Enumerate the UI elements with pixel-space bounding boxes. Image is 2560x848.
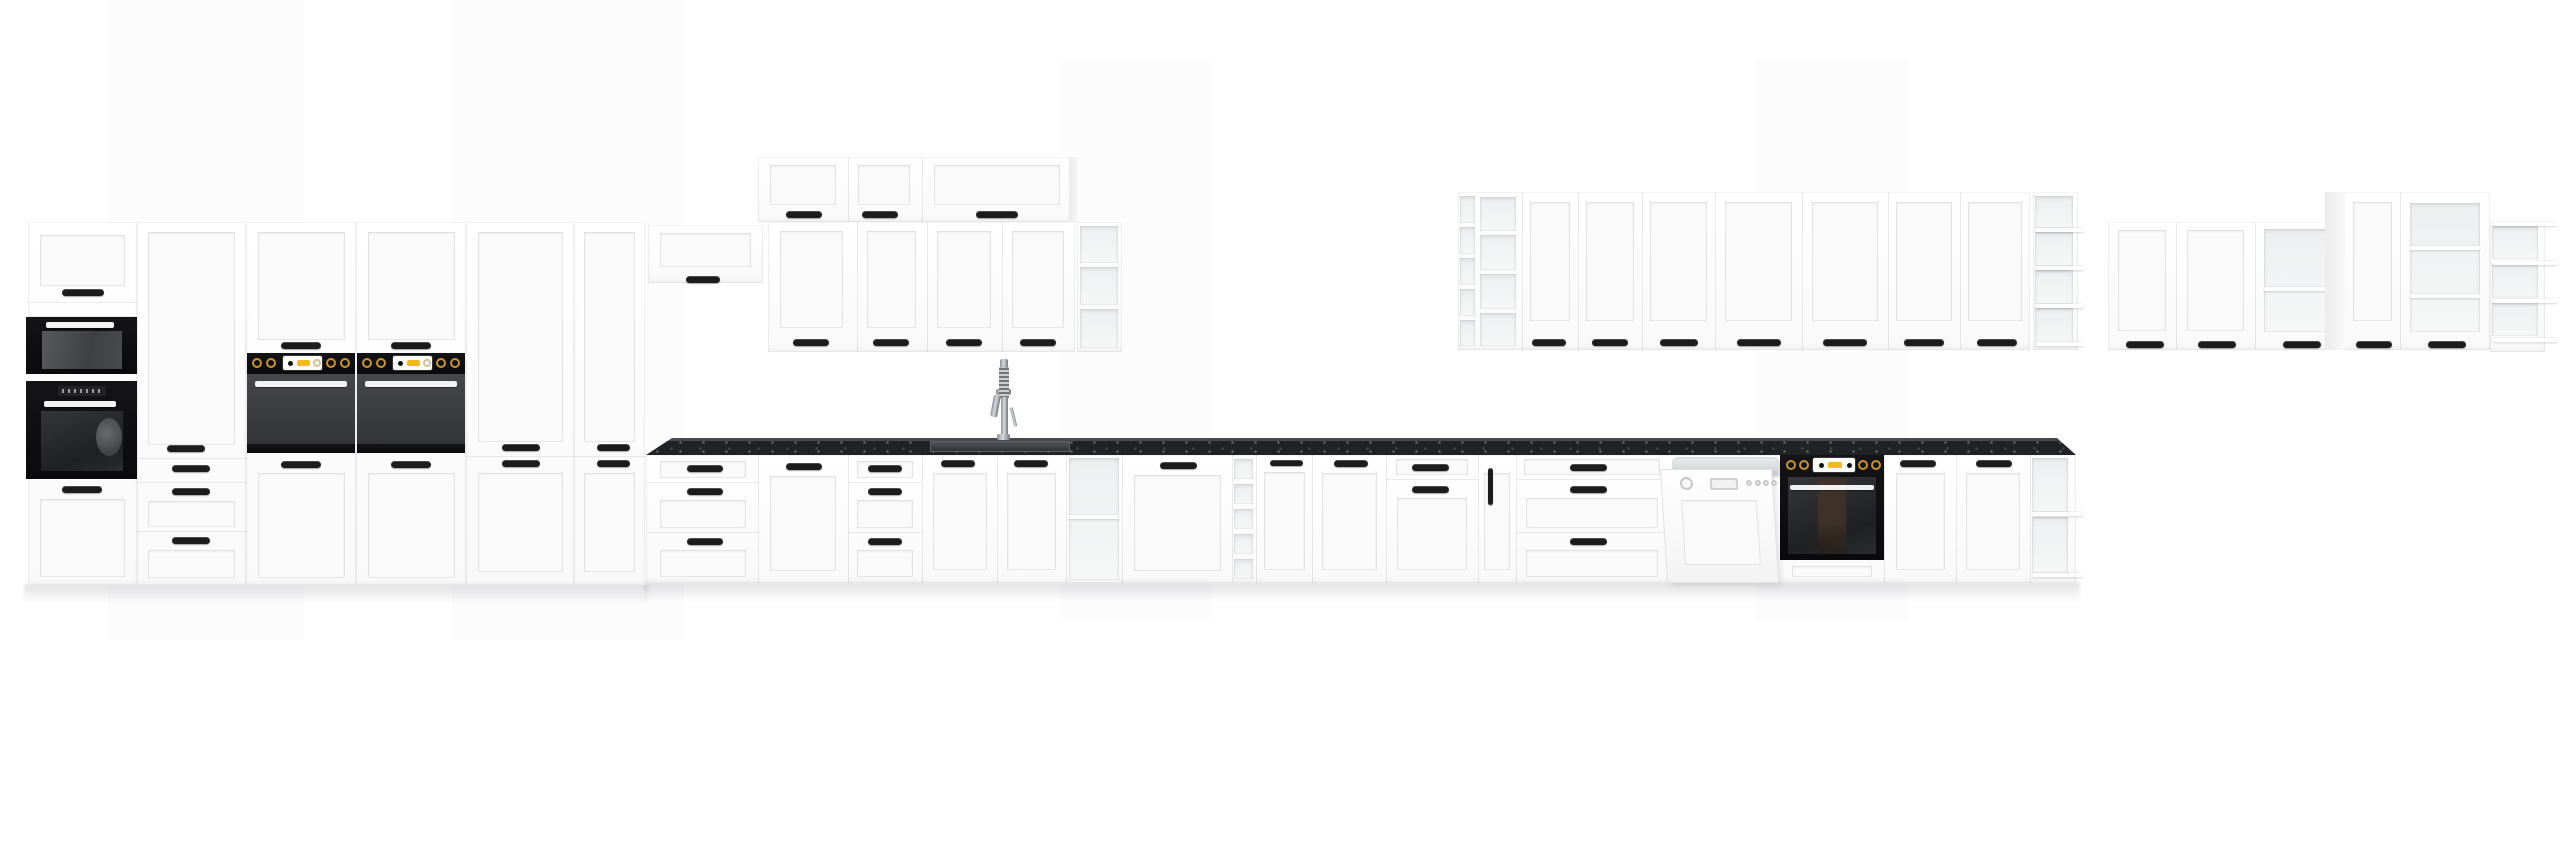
door-panel (40, 235, 125, 286)
control-knob (450, 358, 460, 368)
panel-seam (137, 531, 246, 532)
door-panel (660, 500, 746, 528)
door-handle (1976, 460, 2012, 467)
door-panel (1792, 566, 1872, 577)
door-panel (770, 476, 836, 571)
door-gap (2255, 222, 2256, 350)
countertop (646, 438, 2076, 455)
door-gap (922, 157, 923, 222)
door-gap (848, 455, 849, 583)
door-gap (1232, 455, 1233, 583)
door-gap (1802, 192, 1803, 350)
door-gap (1002, 222, 1003, 352)
shelf-compartment (1460, 227, 1475, 254)
door-panel (1134, 475, 1221, 571)
shelf-edge (2036, 266, 2084, 270)
door-handle (1532, 339, 1566, 346)
base-open-shelf (1069, 458, 1119, 580)
microwave-window (42, 331, 122, 369)
door-panel (780, 231, 843, 328)
faucet-head (990, 395, 1001, 418)
door-panel (2353, 202, 2392, 321)
kitchen-product-image: White shaker-style kitchen cabinet set w… (0, 0, 2560, 848)
appliance-panel (357, 444, 465, 453)
door-handle (391, 342, 431, 349)
door-handle (1904, 339, 1944, 346)
door-panel (1681, 500, 1761, 565)
door-handle (1737, 339, 1781, 346)
control-knob (252, 358, 262, 368)
appliance-handle (44, 401, 116, 407)
door-handle (786, 211, 822, 218)
shelf-compartment (1234, 534, 1253, 554)
shelf-edge (2493, 299, 2557, 303)
panel-seam (848, 532, 922, 533)
door-handle (1592, 339, 1628, 346)
door-handle (172, 488, 210, 495)
door-handle (941, 460, 975, 467)
door-handle (502, 460, 540, 467)
door-handle (502, 444, 540, 451)
door-panel (1264, 472, 1305, 570)
door-handle (793, 339, 829, 346)
door-gap (1256, 455, 1257, 583)
shelf-edge (2033, 573, 2083, 577)
door-panel (934, 165, 1060, 205)
door-handle (868, 465, 902, 472)
door-handle (1160, 462, 1197, 469)
shelf-edge (2493, 222, 2557, 226)
door-handle (2356, 341, 2392, 348)
shelf-compartment (2035, 196, 2073, 228)
faucet-cap (1000, 359, 1008, 368)
door-gap (1884, 455, 1885, 583)
control-knob (436, 358, 446, 368)
door-handle (976, 211, 1018, 218)
door-handle (62, 289, 104, 296)
door-panel (867, 231, 916, 328)
shelf-compartment (1460, 289, 1475, 316)
door-panel (1725, 202, 1792, 321)
door-handle (786, 463, 822, 470)
door-panel (1586, 202, 1634, 321)
shelf-compartment (1234, 559, 1253, 579)
door-gap (1066, 455, 1067, 583)
shelf-edge (2410, 246, 2480, 250)
shelf-edge (2493, 261, 2557, 265)
door-panel (770, 165, 836, 205)
shelf-compartment (1234, 484, 1253, 504)
door-handle (1570, 464, 1607, 471)
door-gap (997, 455, 998, 583)
door-gap (1516, 455, 1517, 583)
shelf-compartment (2035, 308, 2073, 346)
door-handle (167, 445, 205, 452)
door-gap (1642, 192, 1643, 350)
door-gap (2176, 222, 2177, 350)
panel-seam (574, 456, 645, 457)
panel-seam (1516, 532, 1667, 533)
door-handle (687, 538, 723, 545)
glass-cabinet-opening (2264, 229, 2334, 332)
door-handle (868, 488, 902, 495)
door-handle (1334, 460, 1368, 467)
door-panel (148, 501, 235, 527)
control-knob (266, 358, 276, 368)
door-handle (1270, 460, 1303, 466)
door-gap (857, 222, 858, 352)
panel-seam (648, 532, 758, 533)
shelf-compartment (2032, 458, 2068, 512)
door-handle (1570, 486, 1607, 493)
control-knob (1786, 460, 1796, 470)
door-panel (1966, 473, 2020, 570)
door-panel (40, 499, 125, 577)
dishwasher-control (1771, 480, 1777, 486)
shelf-compartment (1460, 196, 1475, 223)
door-panel (1012, 231, 1064, 328)
panel-seam (137, 458, 246, 459)
shelf-compartment (2032, 517, 2068, 573)
door-handle (62, 486, 102, 493)
door-handle (1020, 339, 1056, 346)
door-gap (1386, 455, 1387, 583)
shelf-edge (2033, 512, 2083, 516)
shelf-edge (2264, 287, 2334, 291)
door-handle (868, 538, 902, 545)
door-panel (584, 232, 635, 442)
dishwasher-door (1661, 470, 1778, 582)
door-panel (368, 473, 455, 578)
door-handle (1412, 486, 1449, 493)
door-panel (368, 232, 455, 340)
door-gap (848, 157, 849, 222)
control-knob (1799, 460, 1809, 470)
door-handle (391, 461, 431, 468)
shelf-edge (1069, 515, 1119, 519)
door-handle (2198, 341, 2236, 348)
oven-fan-reflection (96, 418, 122, 456)
dishwasher-control (1746, 480, 1752, 486)
shelf-compartment (1080, 267, 1118, 305)
door-panel (1968, 202, 2022, 321)
panel-seam (137, 482, 246, 483)
panel-seam (1386, 479, 1478, 480)
door-gap (1888, 192, 1889, 350)
display-ring (423, 359, 431, 367)
door-gap (1122, 455, 1123, 583)
door-panel (2118, 230, 2166, 331)
door-handle (687, 488, 723, 495)
side-panel (2325, 192, 2345, 350)
shelf-compartment (1234, 459, 1253, 479)
door-gap (1312, 455, 1313, 583)
panel-seam (848, 482, 922, 483)
shelf-compartment (2492, 302, 2538, 336)
display-indicator (407, 360, 420, 366)
shelf-compartment (1480, 313, 1516, 346)
faucet-body (1001, 397, 1008, 439)
glass-cabinet-opening-tall (2410, 203, 2480, 332)
door-panel (858, 165, 910, 205)
door-panel (2187, 230, 2244, 331)
shelf-compartment (1480, 197, 1516, 231)
door-handle (597, 444, 630, 451)
door-handle (2283, 341, 2321, 348)
sink (930, 441, 1070, 452)
appliance-panel (247, 444, 355, 453)
shelf-compartment (2035, 232, 2073, 266)
door-handle (873, 339, 909, 346)
shelf-edge (2036, 304, 2084, 308)
vertical-handle (1488, 468, 1493, 505)
shelf-compartment (2492, 226, 2538, 259)
door-handle (2126, 341, 2164, 348)
door-handle (946, 339, 982, 346)
door-panel (1526, 498, 1658, 528)
door-panel (660, 233, 751, 267)
door-handle (686, 276, 720, 283)
display-dot (1819, 463, 1824, 468)
oven-display (58, 386, 106, 396)
door-gap (2400, 192, 2401, 350)
door-panel (478, 473, 563, 572)
door-panel (1812, 202, 1878, 321)
faucet-lever (1010, 407, 1018, 427)
door-handle (172, 465, 210, 472)
display-indicator (1828, 462, 1842, 468)
door-panel (1007, 473, 1056, 570)
appliance-handle (365, 381, 457, 387)
door-panel (1322, 473, 1377, 570)
control-knob (362, 358, 372, 368)
shelf-edge (2036, 228, 2084, 232)
appliance-handle (1790, 485, 1874, 490)
door-handle (1900, 460, 1936, 467)
door-gap (1522, 192, 1523, 350)
appliance-handle (255, 381, 347, 387)
door-panel (148, 550, 235, 578)
faucet-coil (999, 366, 1009, 399)
door-panel (1650, 202, 1707, 321)
door-panel (258, 473, 345, 578)
dishwasher-control (1755, 480, 1761, 486)
door-handle (1014, 460, 1048, 467)
door-handle (281, 461, 321, 468)
door-handle (1660, 339, 1698, 346)
floor-shadow-main (644, 582, 2080, 602)
shelf-compartment (1080, 226, 1118, 263)
control-knob (326, 358, 336, 368)
control-knob (1871, 460, 1881, 470)
faucet-base (997, 434, 1010, 440)
appliance-handle (46, 322, 114, 328)
door-gap (922, 455, 923, 583)
door-panel (1526, 550, 1658, 577)
door-gap (927, 222, 928, 352)
door-panel (937, 231, 991, 328)
door-panel (660, 550, 746, 577)
display-indicator (297, 360, 310, 366)
door-handle (281, 342, 321, 349)
door-handle (862, 211, 898, 218)
door-gap (2030, 455, 2031, 583)
door-gap (1715, 192, 1716, 350)
door-handle (597, 460, 630, 467)
control-knob (1858, 460, 1868, 470)
door-handle (1977, 339, 2017, 346)
shelf-compartment (1234, 509, 1253, 529)
door-panel (148, 232, 235, 445)
door-handle (2428, 341, 2466, 348)
door-handle (1412, 464, 1449, 471)
display-dot (398, 361, 403, 366)
display-dot (288, 361, 293, 366)
door-panel (1896, 473, 1945, 570)
shelf-compartment (1460, 258, 1475, 285)
panel-seam (648, 482, 758, 483)
shelf-compartment (1460, 320, 1475, 346)
control-knob (340, 358, 350, 368)
side-panel (1070, 157, 1078, 222)
control-knob (376, 358, 386, 368)
door-handle (1823, 339, 1867, 346)
panel-seam (466, 456, 574, 457)
shelf-compartment (1080, 309, 1118, 348)
door-gap (1578, 192, 1579, 350)
floor-shadow-left (24, 584, 648, 604)
dishwasher-control (1680, 477, 1694, 490)
display-dot (1847, 463, 1852, 468)
shelf-compartment (2035, 270, 2073, 304)
dishwasher-display (1710, 478, 1739, 490)
panel-seam (1516, 479, 1667, 480)
door-panel (258, 232, 345, 340)
door-handle (1570, 538, 1607, 545)
door-gap (1956, 455, 1957, 583)
shelf-compartment (1480, 235, 1516, 270)
door-panel (1530, 202, 1570, 321)
door-gap (758, 455, 759, 583)
door-panel (584, 473, 635, 572)
door-panel (857, 550, 913, 577)
door-handle (172, 537, 210, 544)
door-panel (1397, 498, 1467, 570)
shelf-compartment (2492, 264, 2538, 298)
display-ring (313, 359, 321, 367)
door-gap (1478, 455, 1479, 583)
door-handle (687, 465, 723, 472)
panel-seam (28, 302, 137, 303)
shelf-edge (2493, 338, 2557, 342)
door-panel (933, 473, 987, 570)
dishwasher-control (1763, 480, 1769, 486)
shelf-edge (2036, 342, 2084, 346)
door-gap (1960, 192, 1961, 350)
door-panel (1896, 202, 1952, 321)
door-panel (478, 232, 563, 442)
shelf-edge (2410, 294, 2480, 298)
shelf-compartment (1480, 274, 1516, 309)
door-panel (857, 500, 913, 528)
